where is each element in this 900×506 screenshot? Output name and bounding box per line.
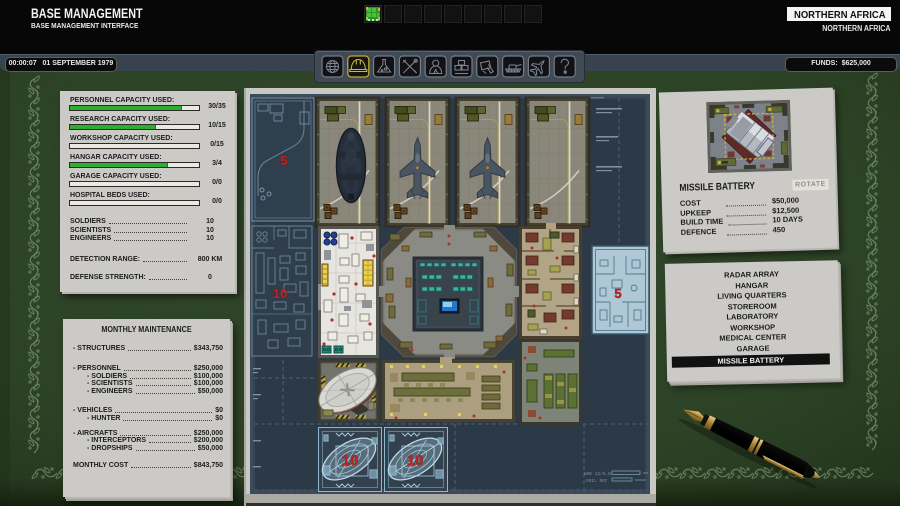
svg-text:WSE 12/5.B: WSE 12/5.B xyxy=(584,471,611,477)
svg-text:10: 10 xyxy=(407,452,424,469)
svg-text:GRIL REF: GRIL REF xyxy=(586,478,608,484)
svg-text:10: 10 xyxy=(342,452,359,469)
svg-text:5: 5 xyxy=(280,153,287,168)
svg-text:10: 10 xyxy=(273,286,287,301)
svg-text:5: 5 xyxy=(614,286,621,301)
